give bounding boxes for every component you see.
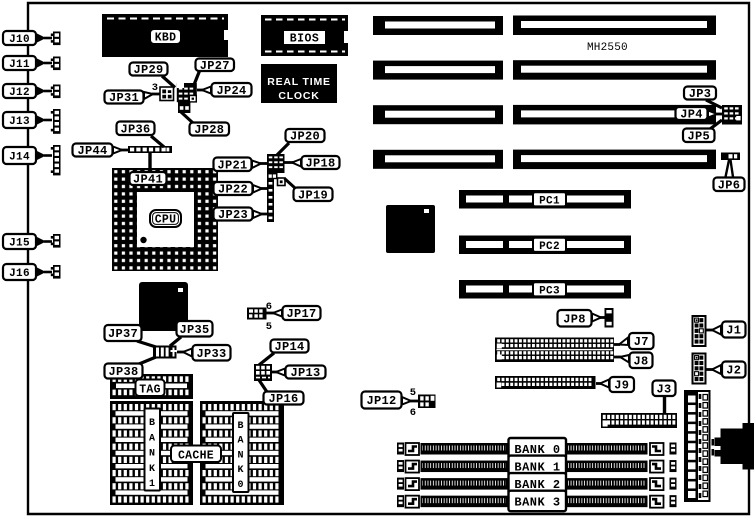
svg-text:3: 3 (152, 82, 159, 94)
svg-text:KBD: KBD (155, 32, 177, 45)
svg-text:A: A (149, 433, 155, 444)
svg-text:K: K (238, 465, 244, 476)
svg-text:JP12: JP12 (366, 394, 396, 408)
svg-text:JP16: JP16 (268, 392, 298, 406)
svg-text:J1: J1 (726, 324, 741, 338)
svg-text:B: B (238, 421, 244, 432)
svg-text:1: 1 (149, 479, 155, 490)
svg-text:BANK 3: BANK 3 (514, 496, 560, 510)
svg-text:6: 6 (410, 407, 417, 419)
svg-text:PC2: PC2 (539, 241, 560, 253)
svg-text:CACHE: CACHE (178, 450, 214, 463)
svg-text:JP19: JP19 (298, 188, 328, 202)
svg-text:K: K (149, 464, 155, 475)
svg-text:J13: J13 (9, 116, 30, 128)
svg-text:JP22: JP22 (218, 183, 248, 197)
svg-text:J15: J15 (9, 238, 30, 250)
svg-text:JP28: JP28 (194, 123, 224, 137)
svg-text:JP33: JP33 (196, 347, 226, 361)
svg-text:MH2550: MH2550 (587, 42, 628, 54)
svg-text:JP23: JP23 (218, 208, 248, 222)
svg-text:CPU: CPU (155, 214, 177, 227)
svg-text:JP36: JP36 (120, 122, 150, 136)
svg-text:JP41: JP41 (133, 173, 163, 187)
svg-text:JP20: JP20 (290, 130, 320, 144)
svg-text:0: 0 (238, 480, 244, 491)
svg-text:J10: J10 (9, 34, 30, 46)
svg-text:PC3: PC3 (539, 286, 560, 298)
svg-text:5: 5 (410, 387, 417, 399)
svg-text:JP21: JP21 (217, 158, 247, 172)
svg-text:BIOS: BIOS (290, 33, 320, 46)
svg-text:J2: J2 (726, 364, 741, 378)
svg-text:JP5: JP5 (687, 129, 710, 143)
svg-text:TAG: TAG (139, 384, 161, 397)
svg-text:6: 6 (266, 301, 273, 313)
svg-text:PC1: PC1 (539, 196, 560, 208)
svg-text:JP37: JP37 (108, 327, 138, 341)
svg-text:JP18: JP18 (305, 157, 335, 171)
svg-text:REAL TIME: REAL TIME (267, 76, 331, 88)
svg-text:J3: J3 (656, 382, 671, 396)
svg-text:JP27: JP27 (200, 59, 230, 73)
svg-text:A: A (238, 436, 244, 447)
svg-text:J7: J7 (634, 335, 649, 349)
svg-text:JP8: JP8 (563, 312, 586, 326)
svg-text:JP24: JP24 (216, 84, 246, 98)
svg-text:J11: J11 (9, 59, 30, 71)
svg-text:JP6: JP6 (718, 178, 741, 192)
svg-text:JP13: JP13 (290, 366, 320, 380)
svg-text:B: B (149, 418, 155, 429)
svg-text:J8: J8 (633, 354, 648, 368)
svg-text:CLOCK: CLOCK (278, 90, 319, 102)
svg-text:JP44: JP44 (77, 144, 107, 158)
svg-text:J14: J14 (9, 152, 30, 164)
svg-text:JP4: JP4 (680, 108, 703, 122)
svg-text:J16: J16 (9, 268, 30, 280)
svg-text:JP38: JP38 (108, 365, 138, 379)
svg-text:JP17: JP17 (286, 307, 316, 321)
svg-text:JP31: JP31 (109, 91, 139, 105)
svg-text:JP35: JP35 (179, 323, 209, 337)
svg-text:J12: J12 (9, 87, 30, 99)
svg-text:N: N (238, 450, 244, 461)
svg-text:J9: J9 (614, 379, 629, 393)
svg-text:JP14: JP14 (274, 340, 304, 354)
svg-text:5: 5 (266, 321, 273, 333)
svg-text:N: N (149, 449, 155, 460)
svg-text:JP29: JP29 (133, 63, 163, 77)
svg-text:JP3: JP3 (689, 87, 712, 101)
